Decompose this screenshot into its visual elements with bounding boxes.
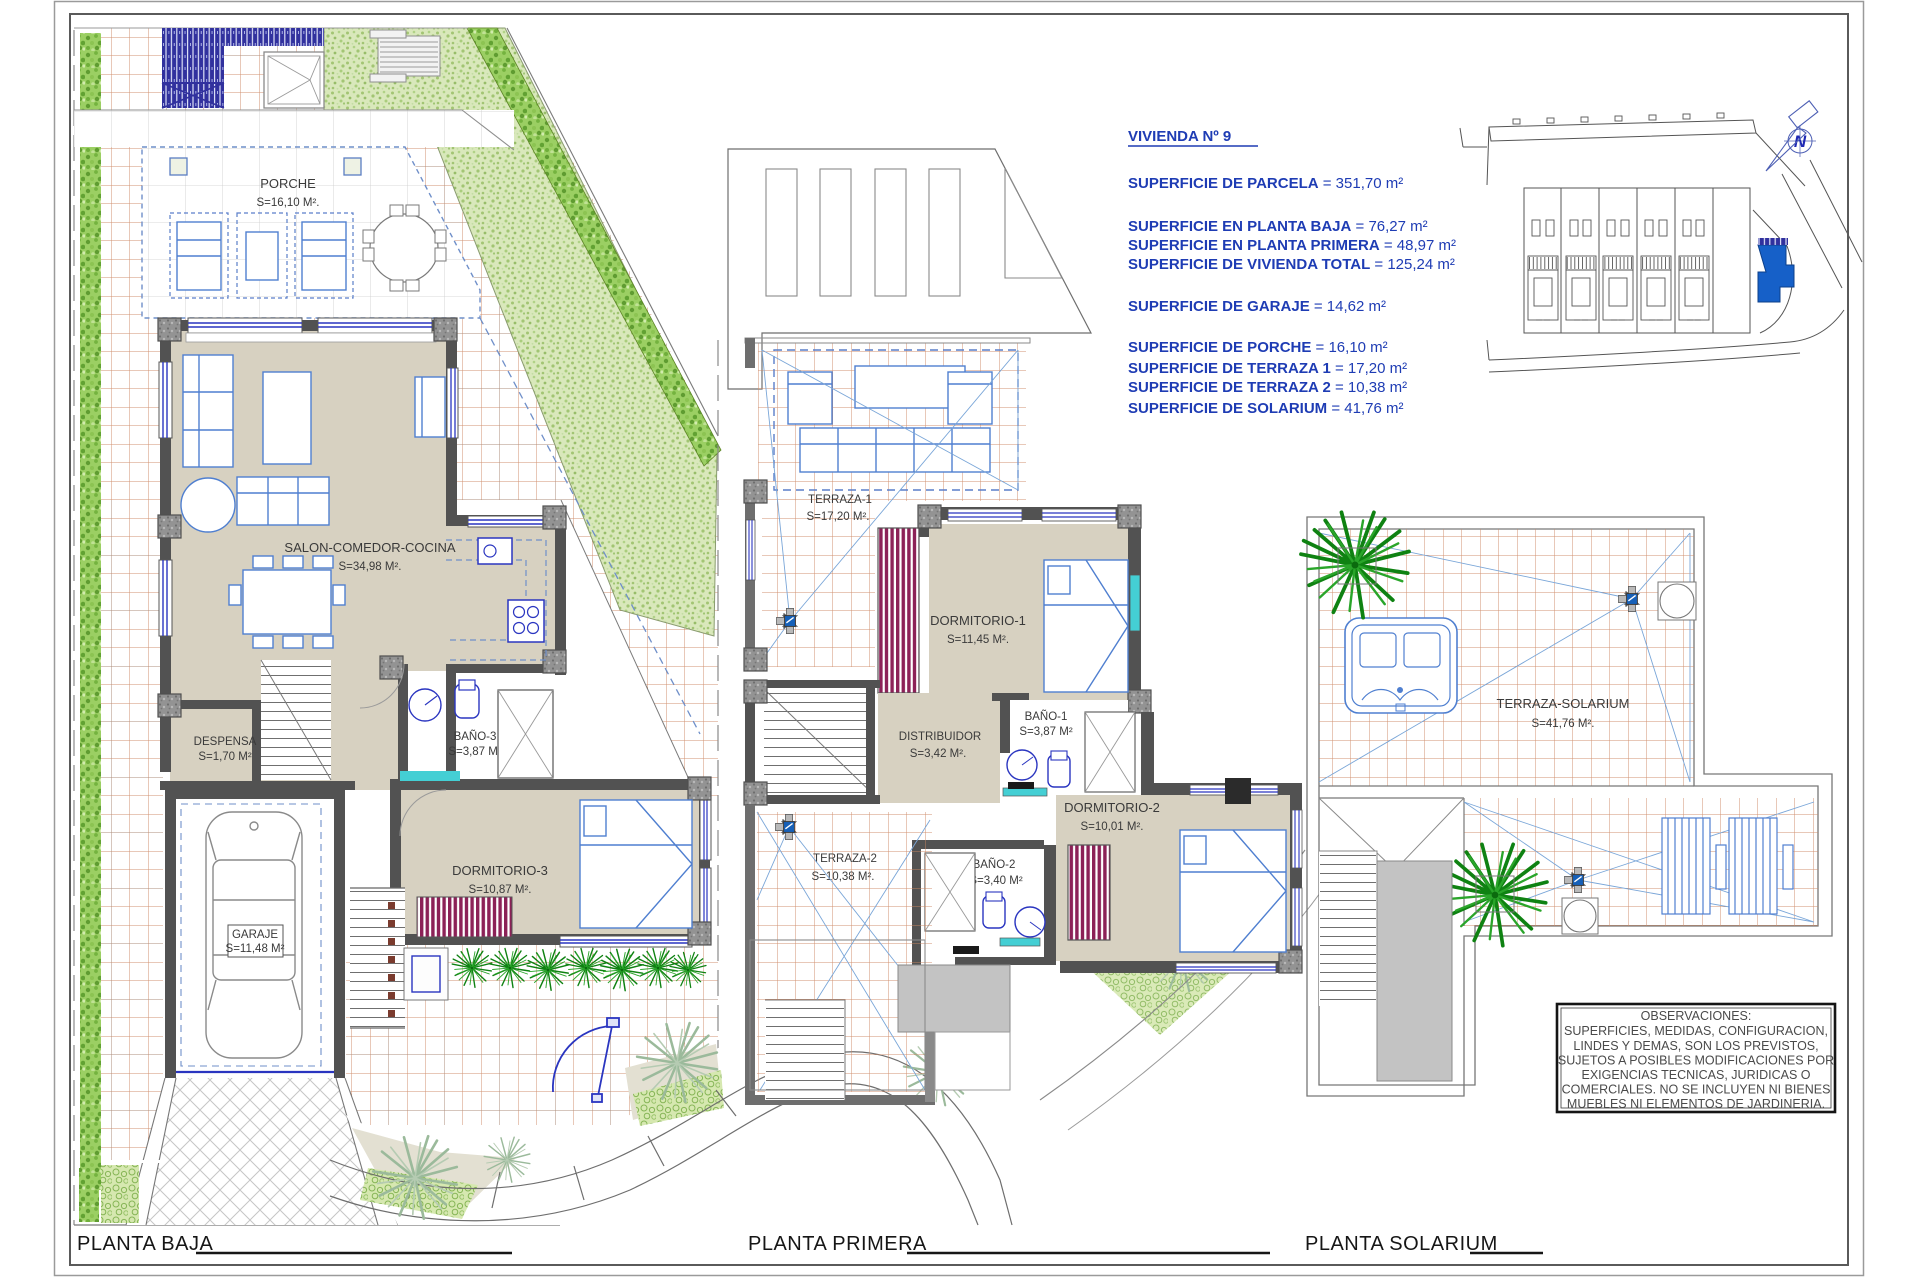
- svg-text:SALON-COMEDOR-COCINA: SALON-COMEDOR-COCINA: [284, 540, 456, 555]
- svg-text:S=41,76 M².: S=41,76 M².: [1532, 718, 1595, 730]
- svg-text:S=3,42 M².: S=3,42 M².: [910, 748, 967, 760]
- svg-text:BAÑO-1: BAÑO-1: [1025, 710, 1068, 723]
- svg-text:S=11,48 M²: S=11,48 M²: [226, 943, 285, 955]
- svg-text:OBSERVACIONES:: OBSERVACIONES:: [1641, 1009, 1752, 1023]
- svg-text:DISTRIBUIDOR: DISTRIBUIDOR: [899, 731, 981, 743]
- svg-text:SUPERFICIE DE VIVIENDA TOTAL =: SUPERFICIE DE VIVIENDA TOTAL = 125,24 m²: [1128, 256, 1455, 273]
- svg-text:S=3,87 M²: S=3,87 M²: [448, 746, 502, 758]
- svg-text:SUPERFICIE DE PORCHE = 16,10 m: SUPERFICIE DE PORCHE = 16,10 m²: [1128, 339, 1388, 356]
- svg-text:S=16,10 M².: S=16,10 M².: [257, 197, 320, 209]
- svg-text:SUPERFICIES, MEDIDAS, CONFIGUR: SUPERFICIES, MEDIDAS, CONFIGURACION,: [1564, 1024, 1828, 1038]
- svg-text:SUPERFICIE DE SOLARIUM = 41,76: SUPERFICIE DE SOLARIUM = 41,76 m²: [1128, 400, 1403, 417]
- svg-text:DORMITORIO-2: DORMITORIO-2: [1064, 800, 1160, 815]
- svg-text:S=10,38 M².: S=10,38 M².: [812, 871, 875, 883]
- svg-text:SUPERFICIE EN PLANTA PRIMERA =: SUPERFICIE EN PLANTA PRIMERA = 48,97 m²: [1128, 237, 1456, 254]
- svg-text:DORMITORIO-3: DORMITORIO-3: [452, 863, 548, 878]
- svg-text:PLANTA SOLARIUM: PLANTA SOLARIUM: [1305, 1233, 1498, 1255]
- svg-text:GARAJE: GARAJE: [232, 929, 278, 941]
- svg-text:VIVIENDA Nº 9: VIVIENDA Nº 9: [1128, 128, 1231, 145]
- svg-text:S=1,70 M²: S=1,70 M²: [198, 751, 252, 763]
- svg-text:S=3,87 M²: S=3,87 M²: [1019, 726, 1073, 738]
- svg-text:PLANTA PRIMERA: PLANTA PRIMERA: [748, 1233, 927, 1255]
- svg-text:TERRAZA-SOLARIUM: TERRAZA-SOLARIUM: [1497, 696, 1630, 711]
- svg-text:COMERCIALES. NO SE INCLUYEN NI: COMERCIALES. NO SE INCLUYEN NI BIENES: [1562, 1083, 1831, 1097]
- svg-text:S=3,40 M²: S=3,40 M²: [969, 875, 1023, 887]
- svg-text:SUJETOS A POSIBLES MODIFICACIO: SUJETOS A POSIBLES MODIFICACIONES POR: [1558, 1054, 1834, 1068]
- svg-text:S=34,98 M².: S=34,98 M².: [339, 561, 402, 573]
- svg-text:S=10,01 M².: S=10,01 M².: [1081, 821, 1144, 833]
- svg-text:DESPENSA: DESPENSA: [194, 736, 257, 748]
- svg-text:PLANTA BAJA: PLANTA BAJA: [77, 1233, 213, 1255]
- svg-text:SUPERFICIE DE TERRAZA 1 = 17,2: SUPERFICIE DE TERRAZA 1 = 17,20 m²: [1128, 360, 1407, 377]
- svg-text:S=17,20 M².: S=17,20 M².: [807, 511, 870, 523]
- svg-text:PORCHE: PORCHE: [260, 176, 316, 191]
- svg-text:MUEBLES NI ELEMENTOS DE JARDIN: MUEBLES NI ELEMENTOS DE JARDINERIA.: [1567, 1097, 1825, 1111]
- svg-text:TERRAZA-2: TERRAZA-2: [813, 853, 877, 865]
- svg-text:SUPERFICIE DE PARCELA = 351,70: SUPERFICIE DE PARCELA = 351,70 m²: [1128, 175, 1403, 192]
- svg-text:SUPERFICIE DE GARAJE = 14,62 m: SUPERFICIE DE GARAJE = 14,62 m²: [1128, 298, 1386, 315]
- svg-text:SUPERFICIE DE TERRAZA 2 = 10,3: SUPERFICIE DE TERRAZA 2 = 10,38 m²: [1128, 379, 1407, 396]
- svg-text:N: N: [1794, 132, 1807, 151]
- svg-text:S=11,45 M².: S=11,45 M².: [947, 634, 1009, 646]
- svg-text:BAÑO-3: BAÑO-3: [454, 730, 497, 743]
- svg-text:BAÑO-2: BAÑO-2: [973, 858, 1016, 871]
- svg-text:EXIGENCIAS TECNICAS, JURIDICAS: EXIGENCIAS TECNICAS, JURIDICAS O: [1582, 1068, 1811, 1082]
- svg-text:LINDES Y DEMAS, SON LOS PREVIS: LINDES Y DEMAS, SON LOS PREVISTOS,: [1573, 1039, 1818, 1053]
- svg-text:DORMITORIO-1: DORMITORIO-1: [930, 613, 1026, 628]
- svg-text:TERRAZA-1: TERRAZA-1: [808, 494, 872, 506]
- svg-text:SUPERFICIE EN PLANTA BAJA = 76: SUPERFICIE EN PLANTA BAJA = 76,27 m²: [1128, 218, 1428, 235]
- svg-text:S=10,87 M².: S=10,87 M².: [469, 884, 532, 896]
